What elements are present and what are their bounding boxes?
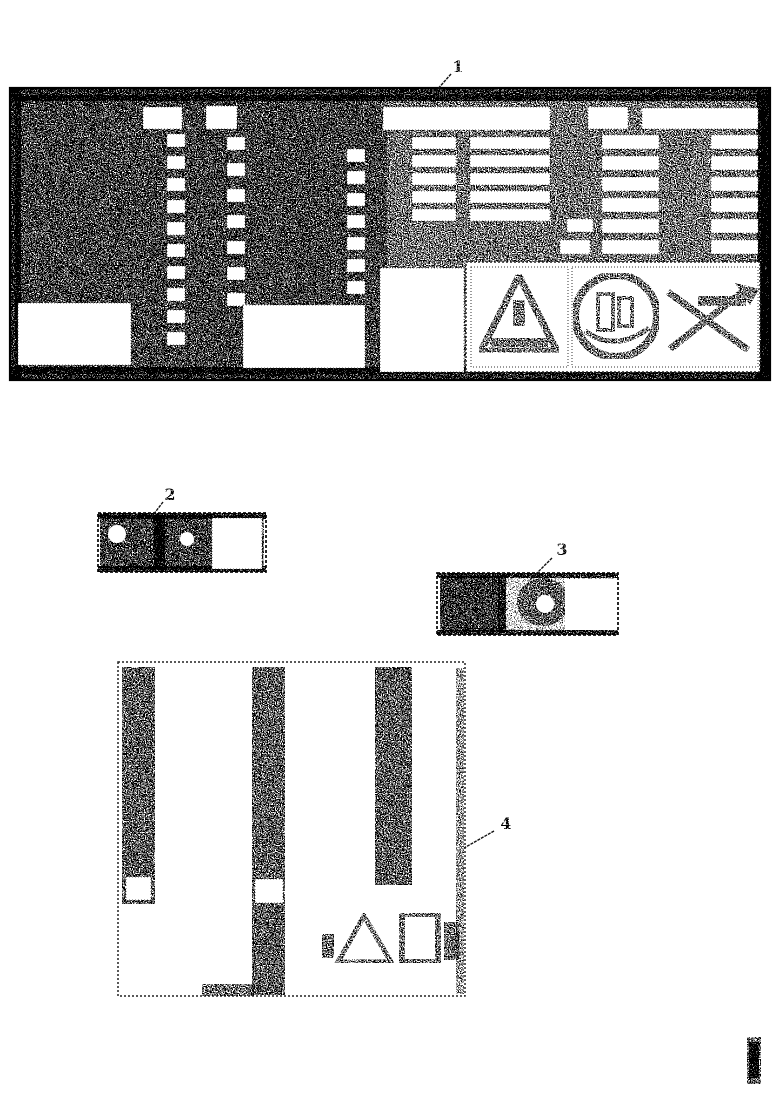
field-box: [560, 240, 590, 254]
callout-3-number: 3: [556, 540, 567, 559]
field-box: [602, 177, 659, 191]
field-box: [167, 156, 185, 169]
field-box: [347, 171, 365, 184]
field-box: [642, 108, 758, 129]
field-box: [227, 163, 245, 176]
decal4-outline: [118, 662, 465, 996]
decal3-pictogram-highlight: [536, 595, 554, 613]
field-box: [167, 244, 185, 257]
plate-border-band: [10, 88, 770, 101]
decal3-pictogram-cell-dither: [440, 576, 500, 632]
decal4-bottom-tab: [202, 984, 254, 996]
field-box: [347, 259, 365, 272]
field-box: [711, 135, 758, 149]
field-box: [167, 332, 185, 345]
callout-4: 4: [464, 814, 512, 848]
figure-code: [747, 1037, 761, 1084]
field-box: [470, 173, 550, 185]
field-box: [206, 106, 237, 129]
field-box: [711, 240, 758, 254]
field-box: [602, 240, 659, 254]
decal3-divider: [498, 576, 506, 632]
callout-1: 1: [436, 57, 464, 91]
field-box: [227, 267, 245, 280]
field-box: [588, 107, 628, 129]
field-box: [412, 173, 456, 185]
field-box: [347, 237, 365, 250]
field-box: [167, 266, 185, 279]
decal4-field-box: [255, 879, 283, 903]
decal4-text-column-overlay: [375, 667, 412, 885]
field-box: [167, 310, 185, 323]
field-box: [227, 215, 245, 228]
plate-edge-vertical-text: [761, 96, 769, 372]
field-box: [167, 178, 185, 191]
callout-1-number: 1: [452, 57, 463, 76]
field-box: [602, 156, 659, 170]
decal2-blank-cell: [212, 518, 262, 569]
field-box: [167, 222, 185, 235]
decal3-blank-cell: [565, 579, 615, 631]
callout-4-number: 4: [500, 814, 511, 833]
small-decal-3: [437, 573, 618, 635]
field-box: [711, 156, 758, 170]
field-box: [347, 215, 365, 228]
field-box: [711, 198, 758, 212]
decal3-border-band: [437, 573, 618, 578]
field-box: [347, 193, 365, 206]
small-decal-2: [98, 513, 266, 572]
machine-data-plate-decal: [10, 88, 770, 380]
decal2-pictogram-highlight: [180, 532, 194, 546]
large-text-decal-4: [118, 662, 465, 996]
field-box: [470, 209, 550, 221]
decal2-divider: [154, 515, 165, 570]
field-box: [227, 137, 245, 150]
figure-code-dither-core: [749, 1042, 759, 1078]
field-box: [412, 155, 456, 167]
blank-panel: [243, 305, 365, 368]
plate-pictogram-box: [466, 262, 760, 372]
field-box: [167, 134, 185, 147]
scanned-manual-page: 1 2 3: [0, 0, 778, 1100]
field-box: [167, 200, 185, 213]
field-box: [711, 177, 758, 191]
field-box: [412, 137, 456, 149]
field-box: [412, 209, 456, 221]
field-box: [602, 219, 659, 233]
field-box: [227, 189, 245, 202]
field-box: [227, 241, 245, 254]
callout-4-leader-line: [464, 831, 494, 848]
field-box: [347, 281, 365, 294]
field-box: [470, 137, 550, 149]
decal4-field-box: [126, 877, 151, 900]
field-box: [567, 219, 593, 232]
blank-panel: [18, 303, 131, 365]
field-box: [602, 135, 659, 149]
field-box: [347, 149, 365, 162]
field-box: [167, 288, 185, 301]
field-box: [412, 191, 456, 203]
field-box: [711, 219, 758, 233]
field-box: [143, 107, 182, 129]
field-box: [470, 155, 550, 167]
field-box: [227, 293, 245, 306]
callout-2-number: 2: [164, 485, 175, 504]
decal4-text-column-overlay: [252, 667, 285, 995]
decal4-text-column-overlay: [122, 667, 155, 904]
decal3-border-band: [437, 630, 618, 635]
field-box: [470, 191, 550, 203]
field-box: [383, 107, 550, 130]
blank-panel: [380, 268, 464, 372]
decal2-pictogram-highlight: [108, 525, 126, 543]
field-box: [602, 198, 659, 212]
